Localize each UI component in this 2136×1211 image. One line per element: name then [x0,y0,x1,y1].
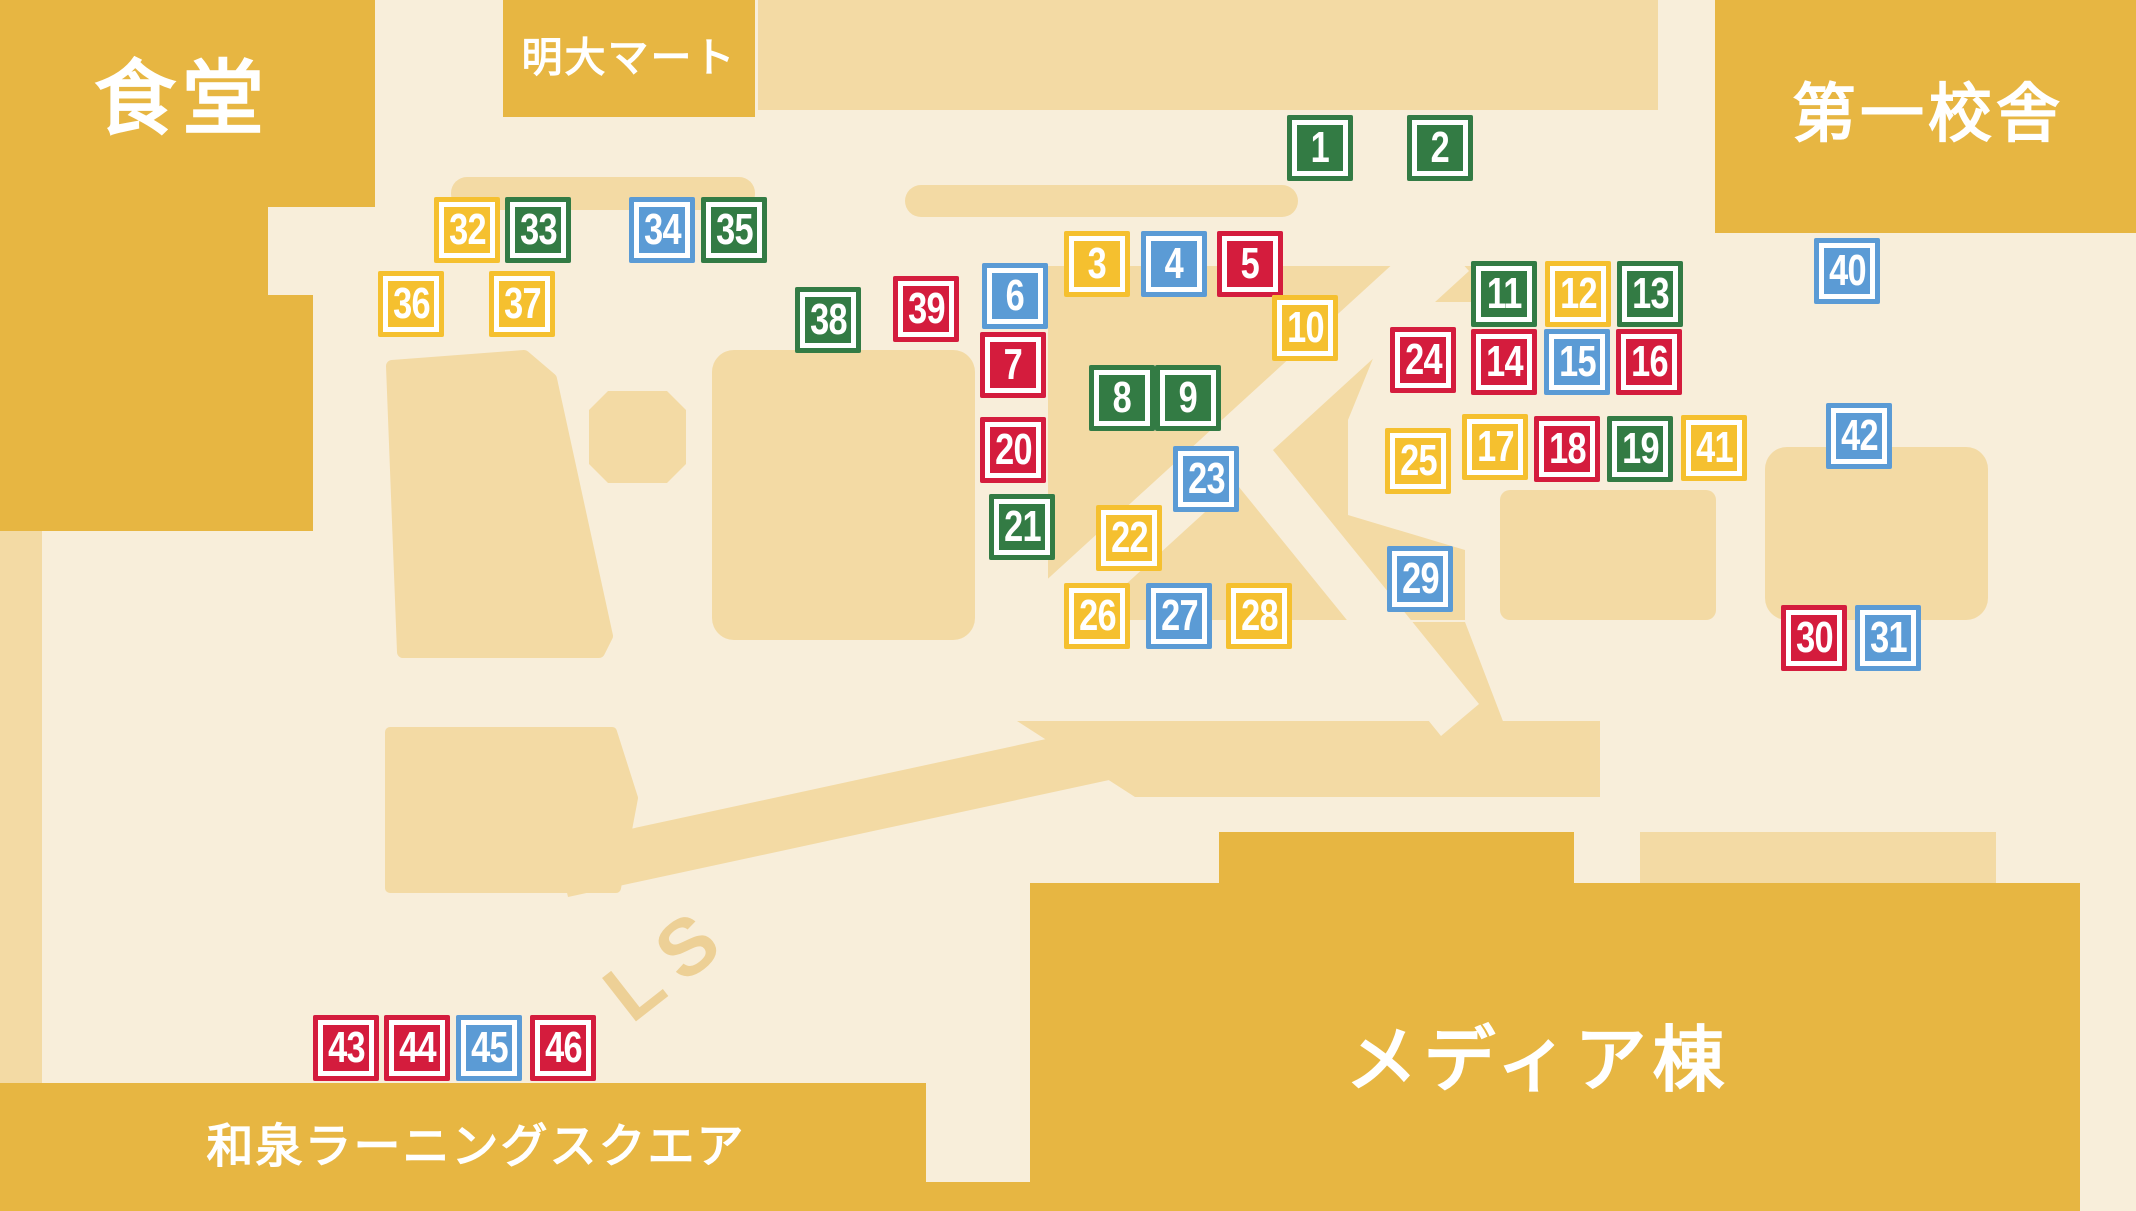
map-marker-number: 6 [1006,274,1024,318]
building-izumi-connector [926,1182,1030,1211]
map-marker-30[interactable]: 30 [1781,605,1847,671]
map-marker-22[interactable]: 22 [1096,505,1162,571]
map-marker-43[interactable]: 43 [313,1015,379,1081]
map-marker-number: 22 [1111,516,1148,560]
map-marker-number: 5 [1241,242,1259,286]
map-marker-number: 37 [504,282,541,326]
map-marker-number: 12 [1560,272,1597,316]
map-marker-23[interactable]: 23 [1173,446,1239,512]
map-marker-number: 24 [1405,338,1442,382]
media-north-annex [1640,832,1996,883]
map-marker-32[interactable]: 32 [434,197,500,263]
map-marker-19[interactable]: 19 [1607,416,1673,482]
map-marker-number: 3 [1088,242,1106,286]
building-footprint-midright [1500,490,1716,620]
map-marker-20[interactable]: 20 [980,417,1046,483]
map-marker-4[interactable]: 4 [1141,231,1207,297]
top-walkway-band [758,0,1658,110]
map-marker-2[interactable]: 2 [1407,115,1473,181]
map-marker-41[interactable]: 41 [1681,415,1747,481]
building-footprint-square [712,350,975,640]
map-marker-35[interactable]: 35 [701,197,767,263]
first-school-building-label: 第一校舎 [1792,82,2064,146]
map-marker-24[interactable]: 24 [1390,327,1456,393]
map-marker-31[interactable]: 31 [1855,605,1921,671]
map-marker-number: 8 [1113,376,1131,420]
map-marker-number: 44 [399,1026,436,1070]
map-marker-12[interactable]: 12 [1545,261,1611,327]
building-footprint-octagon [589,391,686,483]
map-marker-number: 39 [908,287,945,331]
map-marker-number: 30 [1796,616,1833,660]
map-marker-number: 46 [545,1026,582,1070]
map-marker-number: 9 [1179,376,1197,420]
map-marker-number: 42 [1841,414,1878,458]
map-marker-39[interactable]: 39 [893,276,959,342]
building-footprint-trapezoid [392,356,607,652]
map-marker-8[interactable]: 8 [1089,365,1155,431]
map-marker-17[interactable]: 17 [1462,414,1528,480]
map-marker-number: 28 [1241,594,1278,638]
map-marker-18[interactable]: 18 [1534,416,1600,482]
map-marker-13[interactable]: 13 [1617,261,1683,327]
map-marker-number: 17 [1477,425,1514,469]
map-marker-42[interactable]: 42 [1826,403,1892,469]
map-marker-16[interactable]: 16 [1616,329,1682,395]
map-marker-number: 45 [471,1026,508,1070]
map-marker-number: 1 [1311,126,1329,170]
map-marker-number: 18 [1549,427,1586,471]
map-marker-44[interactable]: 44 [384,1015,450,1081]
map-marker-9[interactable]: 9 [1155,365,1221,431]
map-marker-number: 7 [1004,343,1022,387]
map-marker-15[interactable]: 15 [1544,329,1610,395]
walkway-strip-center [905,185,1298,217]
map-marker-number: 33 [520,208,557,252]
map-marker-3[interactable]: 3 [1064,231,1130,297]
map-marker-number: 38 [810,298,847,342]
map-marker-7[interactable]: 7 [980,332,1046,398]
map-marker-38[interactable]: 38 [795,287,861,353]
map-marker-number: 41 [1696,426,1733,470]
map-marker-number: 29 [1402,557,1439,601]
map-marker-number: 32 [449,208,486,252]
map-marker-26[interactable]: 26 [1064,583,1130,649]
building-footprint-east [1765,447,1988,620]
map-marker-14[interactable]: 14 [1471,329,1537,395]
map-marker-29[interactable]: 29 [1387,546,1453,612]
map-marker-number: 19 [1622,427,1659,471]
left-edge-strip [0,531,42,1083]
map-marker-5[interactable]: 5 [1217,231,1283,297]
map-marker-number: 36 [393,282,430,326]
campus-map: 食堂 明大マート 第一校舎 メディア棟 和泉ラーニングスクエア LS 12345… [0,0,2136,1211]
izumi-learning-square-label: 和泉ラーニングスクエア [207,1123,746,1170]
map-marker-number: 10 [1287,306,1324,350]
map-marker-34[interactable]: 34 [629,197,695,263]
map-marker-11[interactable]: 11 [1471,261,1537,327]
map-marker-36[interactable]: 36 [378,271,444,337]
map-marker-number: 43 [328,1026,365,1070]
map-marker-25[interactable]: 25 [1385,428,1451,494]
map-marker-number: 14 [1486,340,1523,384]
map-marker-28[interactable]: 28 [1226,583,1292,649]
map-marker-number: 15 [1559,340,1596,384]
map-marker-46[interactable]: 46 [530,1015,596,1081]
map-marker-number: 13 [1632,272,1669,316]
map-marker-1[interactable]: 1 [1287,115,1353,181]
map-marker-number: 34 [644,208,681,252]
map-marker-number: 26 [1079,594,1116,638]
map-marker-number: 31 [1870,616,1907,660]
map-marker-number: 25 [1400,439,1437,483]
map-marker-40[interactable]: 40 [1814,238,1880,304]
map-marker-number: 27 [1161,594,1198,638]
map-marker-6[interactable]: 6 [982,263,1048,329]
media-building-label: メディア棟 [1346,1025,1731,1097]
map-marker-21[interactable]: 21 [989,494,1055,560]
map-marker-37[interactable]: 37 [489,271,555,337]
map-marker-number: 35 [716,208,753,252]
map-marker-number: 40 [1829,249,1866,293]
map-marker-number: 11 [1487,272,1522,316]
southwest-diagonal-path [556,722,1137,897]
map-marker-number: 20 [995,428,1032,472]
meidai-mart-label: 明大マート [522,38,737,79]
map-marker-number: 2 [1431,126,1449,170]
map-marker-number: 4 [1165,242,1183,286]
map-marker-27[interactable]: 27 [1146,583,1212,649]
cafeteria-label: 食堂 [94,59,270,141]
map-marker-45[interactable]: 45 [456,1015,522,1081]
map-marker-number: 21 [1004,505,1041,549]
map-marker-number: 16 [1631,340,1668,384]
map-marker-10[interactable]: 10 [1272,295,1338,361]
map-marker-33[interactable]: 33 [505,197,571,263]
map-marker-number: 23 [1188,457,1225,501]
